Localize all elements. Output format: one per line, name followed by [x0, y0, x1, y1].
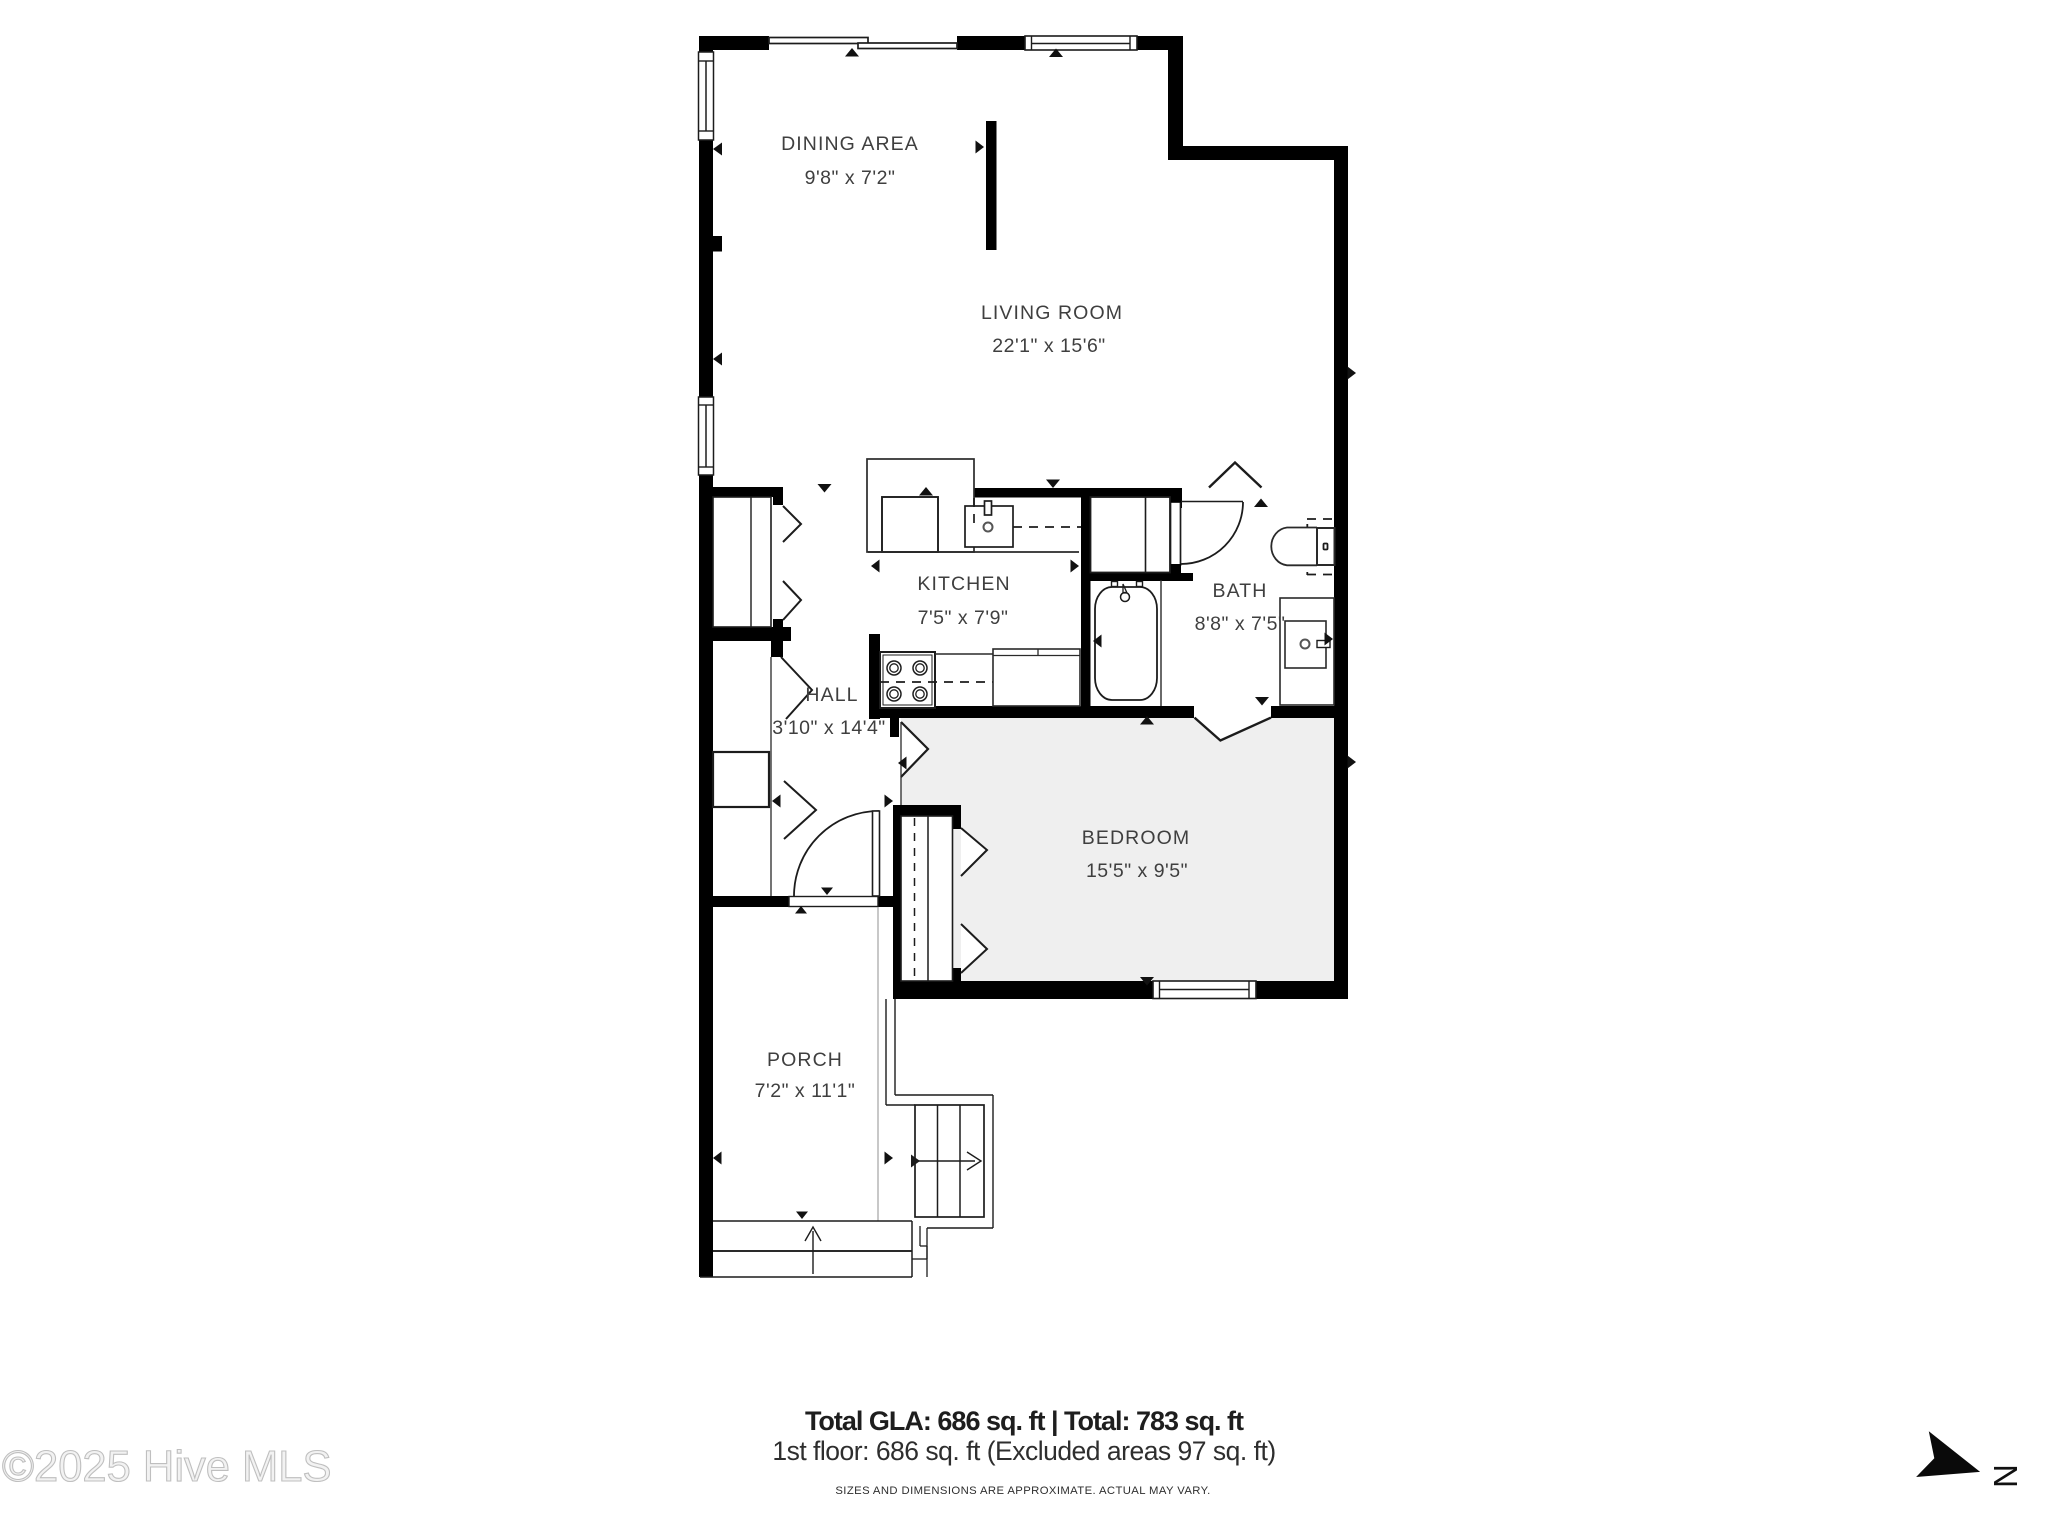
svg-text:N: N	[1987, 1464, 2024, 1488]
svg-text:15'5" x 9'5": 15'5" x 9'5"	[1086, 860, 1188, 882]
svg-text:1st floor: 686 sq. ft (Exclude: 1st floor: 686 sq. ft (Excluded areas 97…	[772, 1436, 1275, 1466]
svg-text:Total GLA: 686 sq. ft | Total:: Total GLA: 686 sq. ft | Total: 783 sq. f…	[805, 1406, 1244, 1436]
svg-text:DINING AREA: DINING AREA	[781, 133, 919, 155]
svg-text:8'8" x 7'5": 8'8" x 7'5"	[1195, 613, 1286, 635]
svg-text:9'8" x 7'2": 9'8" x 7'2"	[805, 167, 896, 189]
svg-text:SIZES AND DIMENSIONS ARE APPRO: SIZES AND DIMENSIONS ARE APPROXIMATE. AC…	[835, 1485, 1210, 1497]
svg-text:7'5" x 7'9": 7'5" x 7'9"	[918, 607, 1009, 629]
svg-text:BEDROOM: BEDROOM	[1082, 827, 1190, 849]
svg-text:BATH: BATH	[1213, 580, 1268, 602]
svg-text:©2025 Hive MLS: ©2025 Hive MLS	[2, 1443, 331, 1491]
svg-text:HALL: HALL	[805, 684, 858, 706]
svg-text:7'2" x 11'1": 7'2" x 11'1"	[755, 1080, 856, 1102]
svg-text:LIVING ROOM: LIVING ROOM	[981, 302, 1123, 324]
svg-text:PORCH: PORCH	[767, 1049, 843, 1071]
svg-text:3'10" x 14'4": 3'10" x 14'4"	[772, 717, 885, 739]
svg-text:KITCHEN: KITCHEN	[917, 573, 1010, 595]
svg-text:22'1" x 15'6": 22'1" x 15'6"	[992, 335, 1105, 357]
